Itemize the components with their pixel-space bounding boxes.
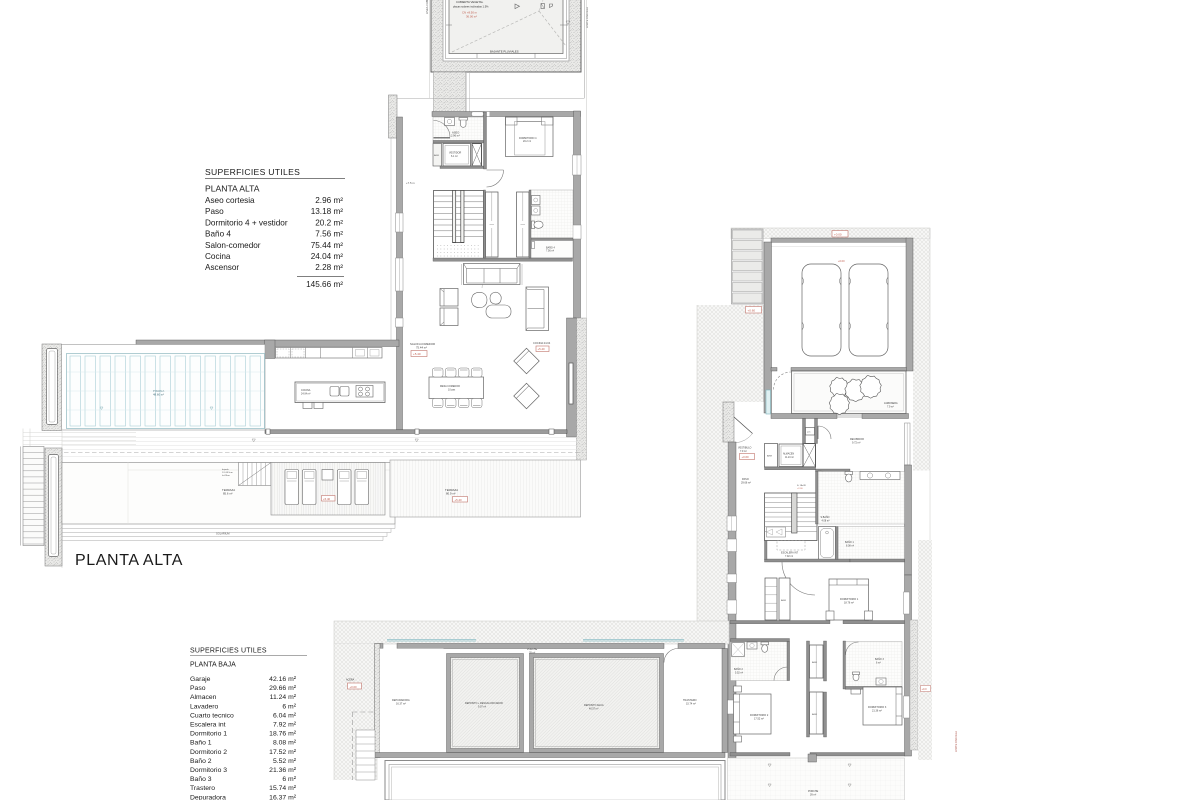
svg-text:6.04 m²: 6.04 m²: [273, 712, 297, 719]
svg-text:20.2 m²: 20.2 m²: [523, 140, 531, 143]
svg-text:7.56 m²: 7.56 m²: [546, 250, 554, 253]
svg-text:+7.5 m: +7.5 m: [406, 181, 415, 185]
svg-text:ARM: ARM: [812, 713, 817, 716]
svg-text:6 m²: 6 m²: [876, 661, 881, 664]
svg-text:PLANTA BAJA: PLANTA BAJA: [190, 662, 236, 669]
svg-text:+5.40: +5.40: [413, 352, 421, 356]
svg-text:+0.60: +0.60: [748, 309, 756, 313]
svg-text:Aseo cortesia: Aseo cortesia: [205, 196, 255, 205]
svg-text:Baño 4: Baño 4: [205, 230, 231, 239]
svg-text:Paso: Paso: [190, 685, 206, 692]
svg-text:SOLARIUM: SOLARIUM: [216, 532, 230, 536]
svg-text:24.04 m²: 24.04 m²: [311, 252, 344, 261]
svg-text:DORMITORIO 3: DORMITORIO 3: [868, 706, 887, 709]
svg-text:PLANTA ALTA: PLANTA ALTA: [205, 184, 260, 194]
svg-text:Cocina: Cocina: [205, 252, 231, 261]
svg-text:Cuarto tecnico: Cuarto tecnico: [190, 712, 234, 719]
svg-text:RECIBIDOR: RECIBIDOR: [850, 438, 864, 441]
svg-text:48.60 m²: 48.60 m²: [153, 393, 164, 397]
svg-text:7.9 m²: 7.9 m²: [887, 405, 894, 408]
svg-text:7.92 m²: 7.92 m²: [785, 555, 793, 558]
svg-text:DORMITORIO 2: DORMITORIO 2: [750, 714, 769, 717]
svg-text:+0.00: +0.00: [350, 685, 358, 689]
svg-text:7.56 m²: 7.56 m²: [315, 230, 343, 239]
svg-text:6.1 m²: 6.1 m²: [451, 155, 458, 158]
svg-text:18.76 m²: 18.76 m²: [269, 731, 297, 738]
svg-text:36.00 m²: 36.00 m²: [466, 15, 477, 19]
svg-text:+5.40: +5.40: [538, 347, 546, 351]
svg-text:+0.00: +0.00: [838, 259, 845, 263]
svg-text:ARM: ARM: [812, 661, 817, 664]
svg-text:2.28 m²: 2.28 m²: [315, 263, 343, 272]
svg-text:Garaje: Garaje: [190, 676, 211, 683]
svg-text:bajada: bajada: [222, 469, 229, 471]
svg-text:7.9 m²: 7.9 m²: [740, 450, 747, 453]
svg-text:Dormitorio 1: Dormitorio 1: [190, 731, 227, 738]
svg-text:placas solares inclinadas 1.5%: placas solares inclinadas 1.5%: [453, 4, 489, 8]
svg-text:Lavadero: Lavadero: [190, 703, 219, 710]
svg-text:17.52 m²: 17.52 m²: [754, 718, 764, 721]
svg-text:Dormitorio 4 + vestidor: Dormitorio 4 + vestidor: [205, 218, 288, 227]
svg-text:LINEA CUBIERTA: LINEA CUBIERTA: [425, 0, 429, 14]
svg-text:PLANTA ALTA: PLANTA ALTA: [75, 552, 183, 569]
svg-text:+2.30: +2.30: [797, 488, 803, 490]
svg-text:Depuradora: Depuradora: [190, 794, 226, 800]
svg-text:39 m²: 39 m²: [810, 793, 816, 796]
svg-text:21.36 m²: 21.36 m²: [872, 710, 882, 713]
svg-text:COCINA 24.04: COCINA 24.04: [533, 341, 551, 345]
svg-text:8.08 m²: 8.08 m²: [273, 740, 297, 747]
svg-text:6 m²: 6 m²: [282, 703, 296, 710]
svg-text:9.07 m²: 9.07 m²: [478, 705, 486, 708]
svg-text:24.04 m²: 24.04 m²: [301, 392, 311, 395]
svg-text:5.52 m²: 5.52 m²: [273, 758, 297, 765]
svg-text:13.18 m²: 13.18 m²: [311, 207, 344, 216]
svg-text:LIMITE PARCELA: LIMITE PARCELA: [954, 731, 958, 752]
svg-text:Almacen: Almacen: [190, 694, 217, 701]
svg-text:BAJANTE PLUVIALES: BAJANTE PLUVIALES: [490, 50, 519, 54]
svg-text:6 m²: 6 m²: [282, 776, 296, 783]
svg-text:Salon-comedor: Salon-comedor: [205, 241, 261, 250]
svg-text:15.74 m²: 15.74 m²: [686, 703, 696, 706]
svg-text:Baño 3: Baño 3: [190, 776, 212, 783]
svg-text:h=28cm: h=28cm: [222, 475, 230, 477]
svg-text:CUBIERTA VEGETAL: CUBIERTA VEGETAL: [456, 0, 484, 4]
svg-text:ARM: ARM: [767, 455, 772, 458]
svg-text:+5.40: +5.40: [455, 498, 463, 502]
svg-text:2.96 m²: 2.96 m²: [315, 196, 343, 205]
svg-text:+0.60: +0.60: [742, 455, 750, 459]
svg-text:17x18.5cm: 17x18.5cm: [222, 472, 233, 474]
svg-text:+0.00: +0.00: [834, 233, 842, 237]
svg-text:DORMITORIO 1: DORMITORIO 1: [840, 598, 859, 601]
svg-text:SUPERFICIES UTILES: SUPERFICIES UTILES: [205, 167, 300, 177]
svg-text:21.36 m²: 21.36 m²: [269, 767, 297, 774]
svg-text:ACERA: ACERA: [346, 679, 355, 682]
svg-text:11.24 m²: 11.24 m²: [270, 694, 297, 701]
svg-text:10 pax: 10 pax: [448, 388, 456, 391]
svg-text:Trastero: Trastero: [190, 785, 215, 792]
svg-text:85.6 m²: 85.6 m²: [223, 492, 233, 496]
svg-text:42.16 m²: 42.16 m²: [269, 676, 297, 683]
svg-text:40.57 m³: 40.57 m³: [589, 707, 599, 710]
svg-text:Paso: Paso: [205, 207, 224, 216]
svg-text:Dormitorio 2: Dormitorio 2: [190, 749, 227, 756]
svg-text:29.66 m²: 29.66 m²: [741, 482, 751, 485]
svg-text:80.9 m²: 80.9 m²: [446, 492, 456, 496]
svg-text:2.96 m²: 2.96 m²: [451, 134, 460, 138]
svg-text:75.44 m²: 75.44 m²: [311, 241, 344, 250]
svg-text:Escalera int: Escalera int: [190, 722, 226, 729]
svg-text:Dormitorio 3: Dormitorio 3: [190, 767, 227, 774]
svg-text:7.92 m²: 7.92 m²: [273, 722, 297, 729]
svg-text:29.66 m²: 29.66 m²: [269, 685, 297, 692]
svg-text:+5.40: +5.40: [323, 497, 331, 501]
svg-text:Baño 2: Baño 2: [190, 758, 212, 765]
svg-text:9.72 m²: 9.72 m²: [852, 442, 861, 445]
svg-text:PASO: PASO: [742, 478, 749, 481]
svg-text:145.66 m²: 145.66 m²: [306, 280, 343, 289]
svg-text:ARM: ARM: [434, 154, 439, 157]
svg-text:5.52 m²: 5.52 m²: [735, 671, 743, 674]
svg-text:ALMACEN: ALMACEN: [783, 453, 794, 456]
svg-text:18.76 m²: 18.76 m²: [844, 602, 854, 605]
svg-text:16.37 m²: 16.37 m²: [396, 703, 406, 706]
svg-text:16.37 m²: 16.37 m²: [269, 794, 297, 800]
svg-text:20.2 m²: 20.2 m²: [315, 218, 343, 227]
svg-text:+0.0: +0.0: [922, 687, 928, 691]
svg-text:Baño 1: Baño 1: [190, 740, 212, 747]
svg-text:75.44 m²: 75.44 m²: [416, 346, 427, 350]
svg-text:TRASTERO: TRASTERO: [683, 699, 697, 702]
svg-text:4.08 m²: 4.08 m²: [822, 519, 830, 522]
svg-text:S: 18x28: S: 18x28: [797, 485, 806, 487]
svg-text:arm: arm: [807, 432, 811, 434]
svg-text:Ascensor: Ascensor: [205, 263, 239, 272]
svg-text:LIMITE PARCELA: LIMITE PARCELA: [585, 7, 589, 28]
svg-text:17.52 m²: 17.52 m²: [269, 749, 297, 756]
svg-text:ARM: ARM: [781, 599, 786, 602]
svg-text:8.08 m²: 8.08 m²: [846, 544, 854, 547]
svg-text:11.24 m²: 11.24 m²: [785, 456, 794, 459]
svg-text:15.74 m²: 15.74 m²: [269, 785, 297, 792]
svg-text:SUPERFICIES UTILES: SUPERFICIES UTILES: [190, 648, 267, 655]
svg-text:DEPURADORA: DEPURADORA: [392, 699, 410, 702]
